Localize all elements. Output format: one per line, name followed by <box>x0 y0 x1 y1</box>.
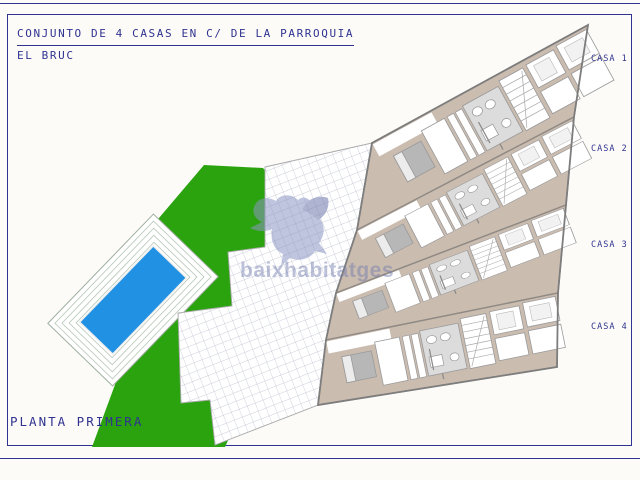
project-location: EL BRUC <box>17 48 354 65</box>
floor-plan-sheet: baixhabitatges CONJUNTO DE 4 CASAS EN C/… <box>0 0 640 480</box>
house-label-casa-3: CASA 3 <box>591 240 628 250</box>
watermark-text: baixhabitatges <box>240 259 394 282</box>
project-title: CONJUNTO DE 4 CASAS EN C/ DE LA PARROQUI… <box>17 26 354 46</box>
site-plan-drawing: baixhabitatges <box>0 0 640 480</box>
title-block: CONJUNTO DE 4 CASAS EN C/ DE LA PARROQUI… <box>17 20 354 64</box>
floor-label: PLANTA PRIMERA <box>10 414 143 429</box>
house-label-casa-4: CASA 4 <box>591 322 628 332</box>
house-label-casa-1: CASA 1 <box>591 54 628 64</box>
house-label-casa-2: CASA 2 <box>591 144 628 154</box>
row-of-4-houses <box>318 25 618 405</box>
